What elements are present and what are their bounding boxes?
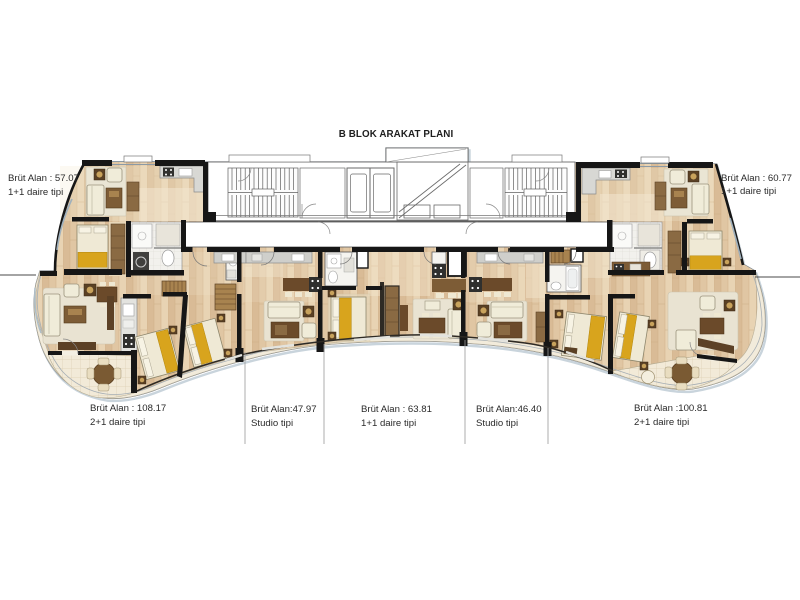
- svg-text:2+1 daire tipi: 2+1 daire tipi: [634, 417, 689, 428]
- svg-text:Brüt Alan:46.40: Brüt Alan:46.40: [476, 404, 542, 415]
- svg-text:Brüt Alan:47.97: Brüt Alan:47.97: [251, 404, 317, 415]
- svg-text:Studio tipi: Studio tipi: [251, 418, 293, 429]
- svg-text:Brüt Alan :100.81: Brüt Alan :100.81: [634, 403, 708, 414]
- svg-text:1+1 daire tipi: 1+1 daire tipi: [721, 186, 776, 197]
- svg-text:1+1 daire tipi: 1+1 daire tipi: [361, 418, 416, 429]
- svg-text:B BLOK ARAKAT PLANI: B BLOK ARAKAT PLANI: [339, 129, 454, 140]
- svg-text:Brüt Alan : 57.07: Brüt Alan : 57.07: [8, 173, 79, 184]
- svg-text:Brüt Alan : 60.77: Brüt Alan : 60.77: [721, 173, 792, 184]
- svg-text:Brüt Alan : 63.81: Brüt Alan : 63.81: [361, 404, 432, 415]
- svg-text:1+1 daire tipi: 1+1 daire tipi: [8, 187, 63, 198]
- svg-text:Brüt Alan : 108.17: Brüt Alan : 108.17: [90, 403, 166, 414]
- svg-text:Studio tipi: Studio tipi: [476, 418, 518, 429]
- svg-text:2+1 daire tipi: 2+1 daire tipi: [90, 417, 145, 428]
